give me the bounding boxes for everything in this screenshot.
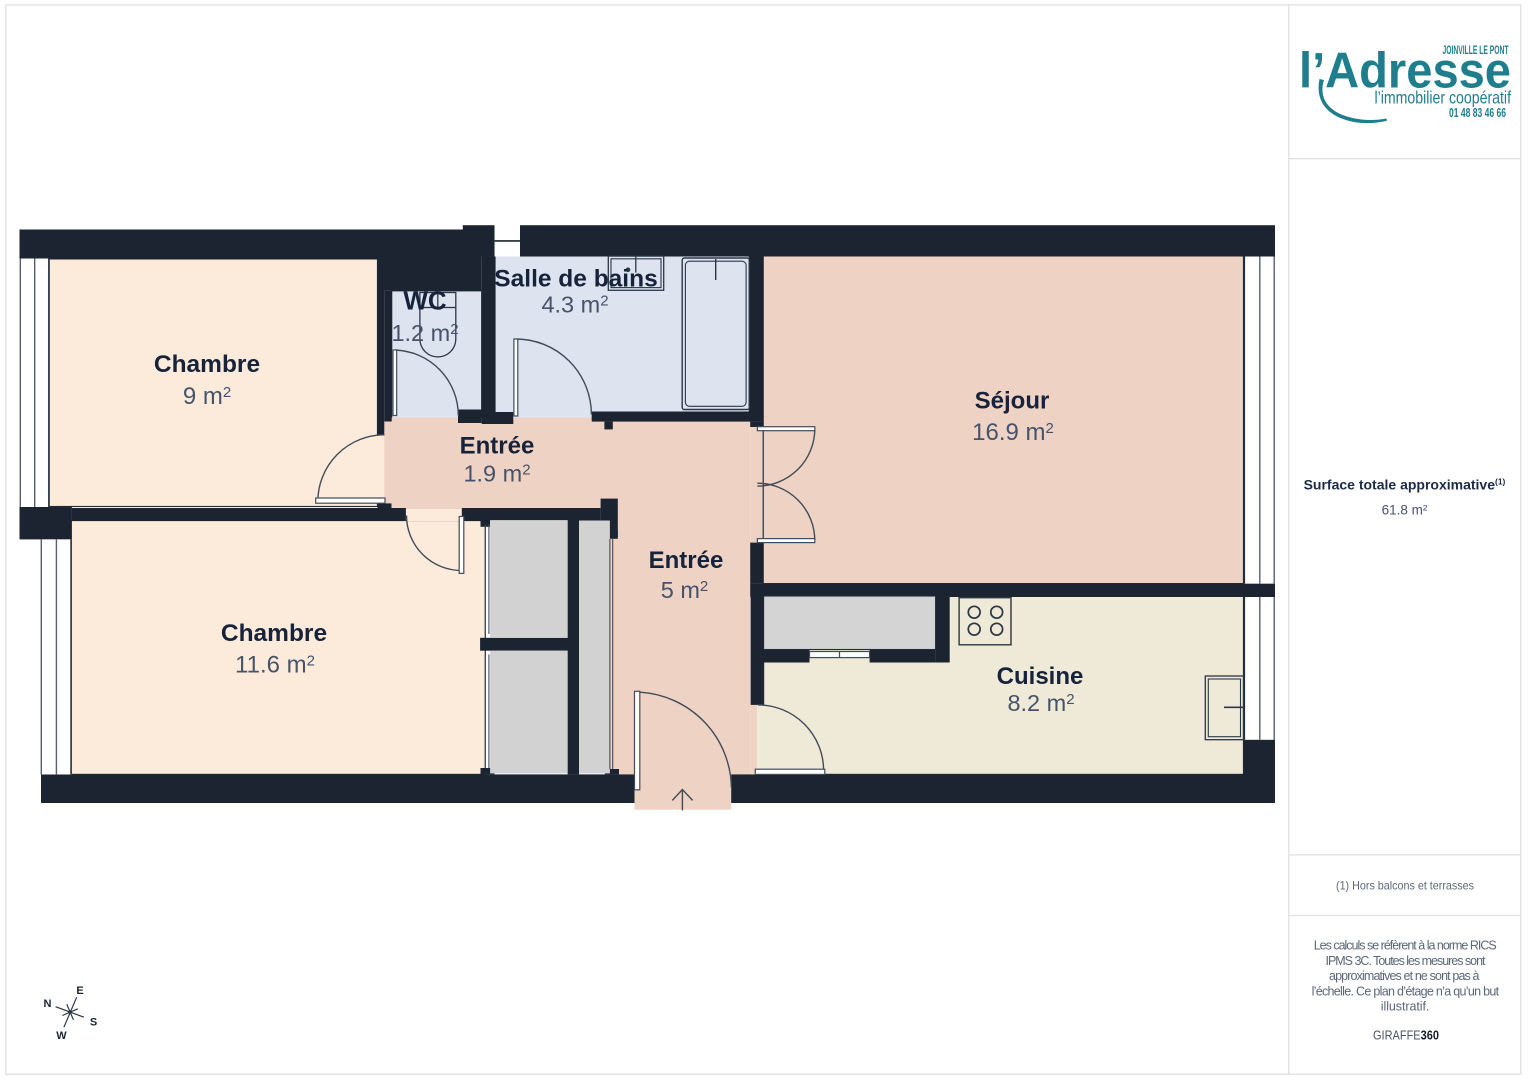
svg-text:Les calculs se réfèrent à la n: Les calculs se réfèrent à la norme RICS xyxy=(1314,939,1497,953)
svg-text:Entrée: Entrée xyxy=(460,433,535,460)
svg-text:16.9 m2: 16.9 m2 xyxy=(972,419,1054,446)
svg-text:Surface totale approximative(1: Surface totale approximative(1) xyxy=(1304,477,1506,493)
svg-text:1.9 m2: 1.9 m2 xyxy=(463,461,530,487)
svg-text:Cuisine: Cuisine xyxy=(997,663,1084,690)
svg-text:E: E xyxy=(76,985,83,997)
svg-text:4.3 m2: 4.3 m2 xyxy=(541,292,608,318)
svg-text:Séjour: Séjour xyxy=(975,388,1050,415)
svg-text:61.8 m²: 61.8 m² xyxy=(1382,503,1428,518)
svg-text:W: W xyxy=(56,1030,67,1042)
svg-text:1.2 m2: 1.2 m2 xyxy=(391,320,458,346)
svg-text:approximatives et ne sont pas: approximatives et ne sont pas à xyxy=(1329,969,1480,983)
svg-text:illustratif.: illustratif. xyxy=(1381,1000,1430,1014)
svg-text:N: N xyxy=(44,998,52,1010)
svg-text:Chambre: Chambre xyxy=(221,620,327,647)
svg-text:l’immobilier coopératif: l’immobilier coopératif xyxy=(1375,88,1512,108)
svg-text:IPMS 3C. Toutes les mesures so: IPMS 3C. Toutes les mesures sont xyxy=(1326,954,1487,968)
svg-text:S: S xyxy=(90,1017,97,1029)
svg-text:Chambre: Chambre xyxy=(154,351,260,378)
svg-text:l’échelle. Ce plan d’étage n’a: l’échelle. Ce plan d’étage n’a qu’un but xyxy=(1312,984,1500,998)
svg-text:(1) Hors balcons et terrasses: (1) Hors balcons et terrasses xyxy=(1336,879,1474,893)
svg-text:Entrée: Entrée xyxy=(649,547,724,574)
svg-text:8.2 m2: 8.2 m2 xyxy=(1007,690,1074,716)
svg-text:01 48 83 46 66: 01 48 83 46 66 xyxy=(1449,106,1506,120)
svg-text:Salle de bains: Salle de bains xyxy=(494,266,657,293)
svg-text:GIRAFFE360: GIRAFFE360 xyxy=(1373,1027,1439,1042)
svg-text:WC: WC xyxy=(403,286,447,316)
svg-text:11.6 m2: 11.6 m2 xyxy=(235,652,315,679)
